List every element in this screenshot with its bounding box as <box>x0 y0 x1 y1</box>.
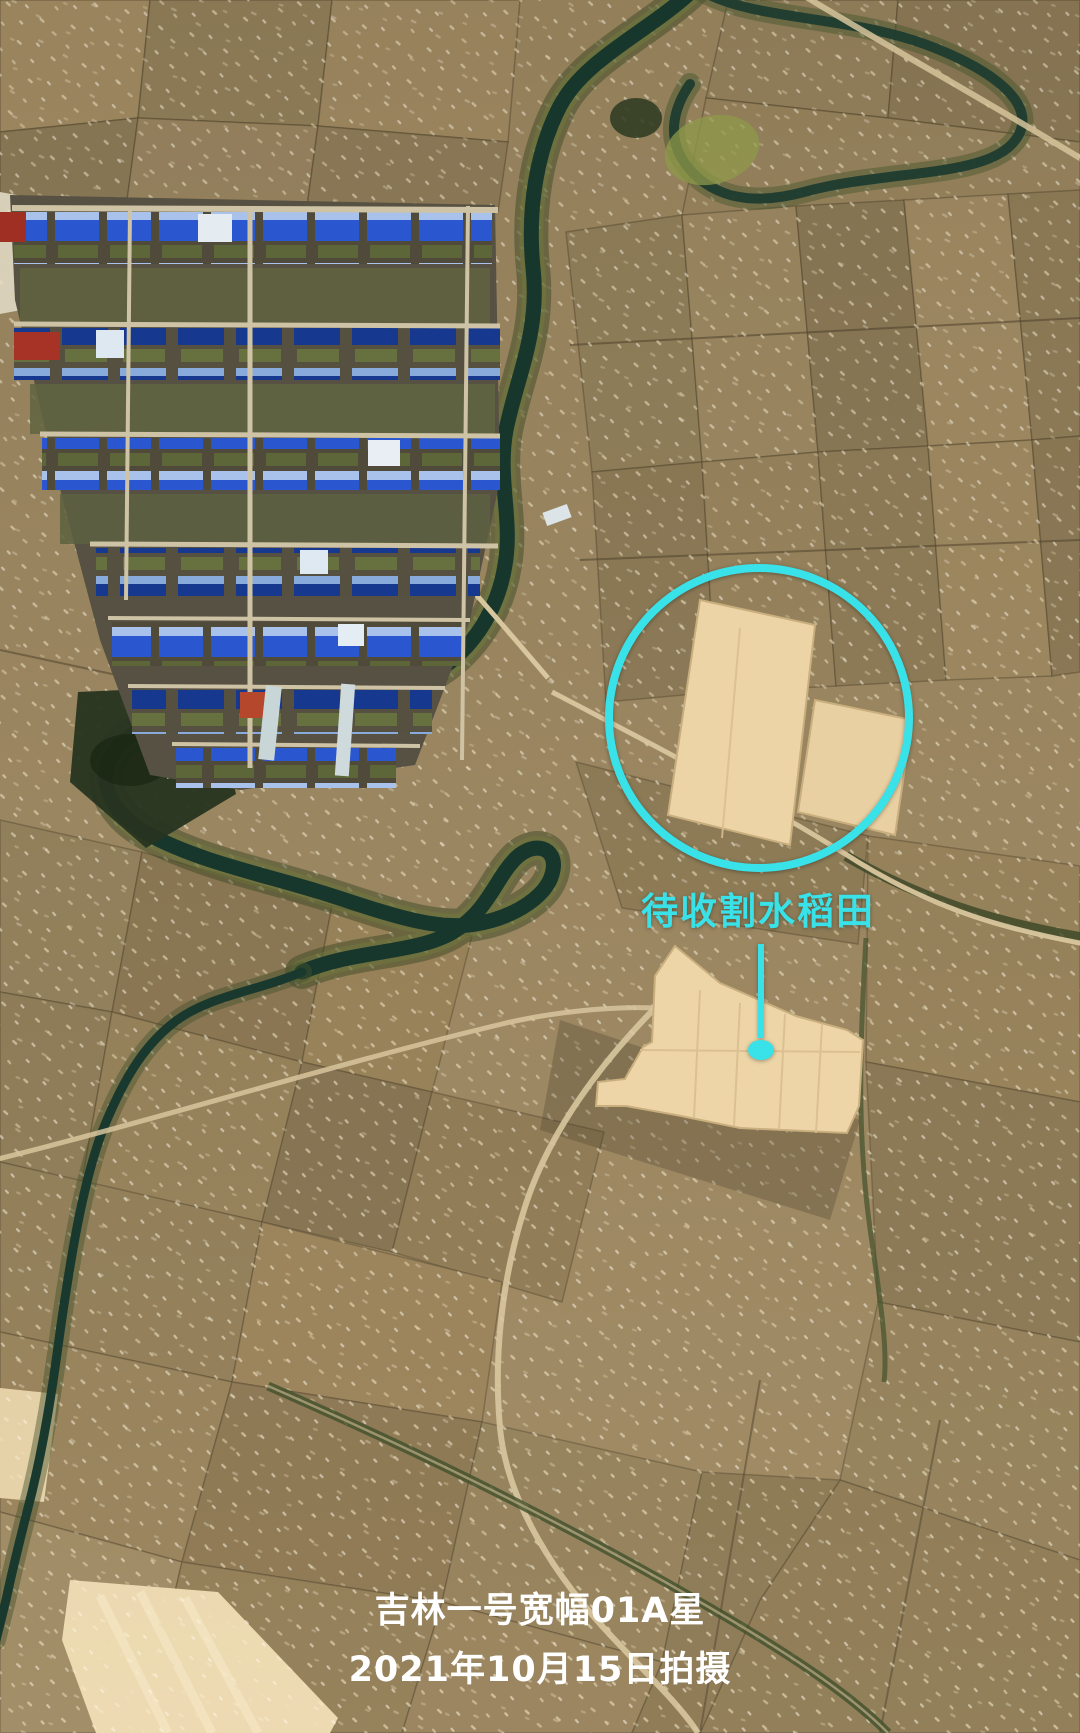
caption-line1: 吉林一号宽幅01A星 <box>375 1590 706 1631</box>
garden-strip <box>30 384 495 434</box>
paddy-parcel-circle-right <box>798 700 912 835</box>
white-roof <box>338 624 364 646</box>
street <box>14 324 500 326</box>
house-row <box>42 438 500 490</box>
house-row <box>176 748 396 788</box>
caption-line2: 2021年10月15日拍摄 <box>349 1650 732 1690</box>
red-roof <box>0 212 26 242</box>
garden-strip <box>60 494 490 544</box>
street <box>40 434 500 436</box>
white-roof <box>198 214 232 242</box>
white-roof <box>96 330 124 358</box>
house-row <box>14 212 492 264</box>
house-row <box>96 548 480 596</box>
garden-strip <box>20 268 490 324</box>
house-row <box>132 690 432 734</box>
house-row <box>14 328 500 380</box>
tree-clump <box>610 98 662 138</box>
annotation-label: 待收割水稻田 <box>641 890 875 933</box>
house-row <box>112 622 464 666</box>
street <box>90 544 498 546</box>
white-roof <box>368 440 400 466</box>
street <box>12 208 498 210</box>
white-roof <box>300 550 328 574</box>
red-roof <box>14 332 60 360</box>
street <box>172 744 420 746</box>
pointer-dot <box>748 1040 774 1060</box>
satellite-image: 待收割水稻田 吉林一号宽幅01A星 2021年10月15日拍摄 <box>0 0 1080 1733</box>
street <box>128 686 445 688</box>
street <box>108 618 470 620</box>
